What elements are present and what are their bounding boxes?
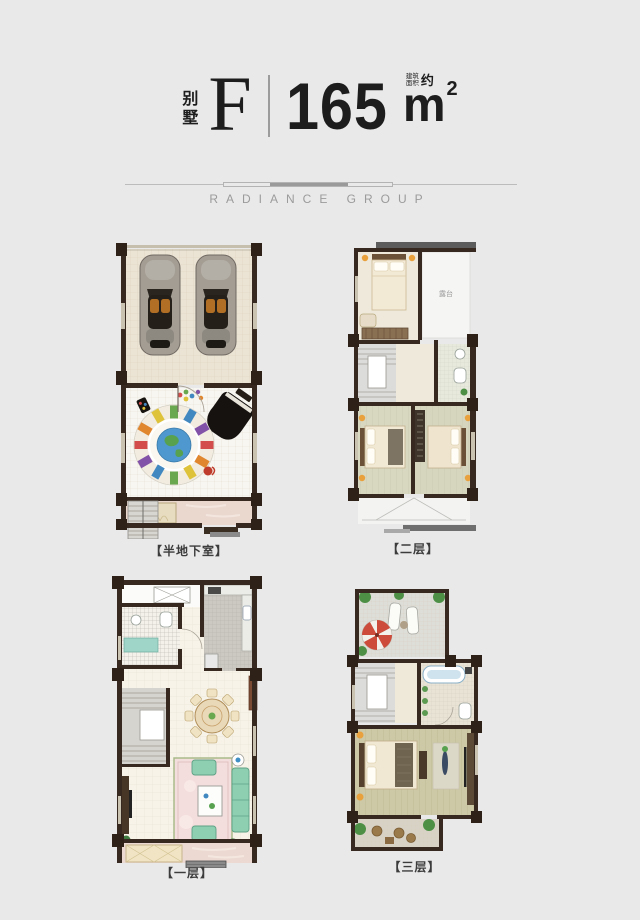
plant-icon <box>423 819 435 831</box>
coffee-table-icon <box>198 786 222 816</box>
balcony <box>354 494 476 533</box>
armchair-icon <box>192 826 216 841</box>
car-icon <box>196 255 236 355</box>
lamp-icon <box>362 255 368 261</box>
floorplan-floor3 <box>347 585 482 857</box>
brand-name: RADIANCE GROUP <box>0 192 640 206</box>
lamp-icon <box>409 255 415 261</box>
stove-icon <box>208 587 221 594</box>
tv-cabinet-icon <box>467 733 474 805</box>
bathroom <box>417 663 474 725</box>
stairwell <box>355 663 395 723</box>
dining-table-icon <box>185 689 239 743</box>
kitchen <box>200 585 252 671</box>
bathroom <box>434 340 470 402</box>
car-icon <box>140 255 180 355</box>
floorplan-label-basement: 【半地下室】 <box>116 542 262 559</box>
plant-icon <box>422 698 428 704</box>
lounge-chair-icon <box>388 603 402 631</box>
stairs <box>128 501 158 539</box>
floorplan-floor1 <box>112 576 262 868</box>
area-unit: m 2 <box>403 87 458 125</box>
villa-label: 别墅 <box>182 90 200 128</box>
bench-icon <box>419 751 427 779</box>
armchair-icon <box>192 760 216 775</box>
brand-divider <box>125 182 517 188</box>
roof-terrace <box>355 589 449 659</box>
wicker-chair-icon <box>407 834 416 843</box>
wicker-chair-icon <box>394 828 404 838</box>
area-unit-block: 建筑 面积 约 m 2 <box>403 73 458 126</box>
plant-icon <box>422 710 428 716</box>
vase-icon <box>442 751 448 775</box>
washbasin-icon <box>455 349 465 359</box>
wicker-chair-icon <box>372 826 382 836</box>
balcony <box>351 815 478 851</box>
terrace-area: 露台 <box>422 252 470 338</box>
armchair-icon <box>360 314 376 327</box>
bedroom-small <box>358 252 418 340</box>
brand-divider-bar <box>223 182 393 187</box>
terrace-label: 露台 <box>439 289 453 298</box>
plant-icon <box>354 823 366 835</box>
floorplan-floor2: 露台 <box>348 242 478 534</box>
bedroom-left <box>358 406 411 494</box>
unit-type-letter: F <box>208 69 251 139</box>
area-unit-m: m <box>403 87 446 125</box>
bedroom-right <box>415 406 471 494</box>
toilet-icon <box>454 368 466 383</box>
washbasin-icon <box>131 615 141 625</box>
lounge-chair-icon <box>406 607 419 635</box>
lamp-icon <box>359 475 365 481</box>
door-step <box>204 527 240 537</box>
stairs <box>122 688 170 767</box>
floorplan-basement <box>116 243 262 539</box>
area-value: 165 <box>286 78 388 134</box>
floorplan-label-floor2: 【二层】 <box>348 540 478 557</box>
toilet-icon <box>459 703 471 719</box>
plant-icon <box>461 389 468 396</box>
parasol-icon <box>362 620 392 650</box>
area-unit-sup: 2 <box>447 79 458 99</box>
header: 别墅 F 165 建筑 面积 约 m 2 <box>0 66 640 146</box>
wardrobe-icon <box>362 328 408 339</box>
brand-divider-bar-fill <box>270 183 348 186</box>
hallway <box>396 344 436 402</box>
fridge-icon <box>205 654 218 669</box>
lamp-icon <box>357 794 364 801</box>
hallway <box>395 663 417 723</box>
table-icon <box>385 837 394 844</box>
doormat-icon <box>126 845 182 862</box>
play-rug-icon <box>134 405 214 485</box>
bathtub-icon <box>124 638 158 652</box>
table-icon <box>400 621 408 629</box>
niche-icon <box>465 667 472 674</box>
page: 别墅 F 165 建筑 面积 约 m 2 RADIANCE GROUP <box>0 0 640 920</box>
master-bedroom <box>355 729 474 815</box>
header-divider <box>268 75 270 137</box>
plant-icon <box>422 686 428 692</box>
lamp-icon <box>359 415 365 421</box>
wardrobe-icon <box>415 410 425 462</box>
floorplan-label-floor1: 【一层】 <box>112 864 262 881</box>
floorplan-label-floor3: 【三层】 <box>347 858 482 875</box>
roof-edge <box>376 242 476 248</box>
sink-icon <box>243 606 251 620</box>
toilet-icon <box>160 612 172 627</box>
